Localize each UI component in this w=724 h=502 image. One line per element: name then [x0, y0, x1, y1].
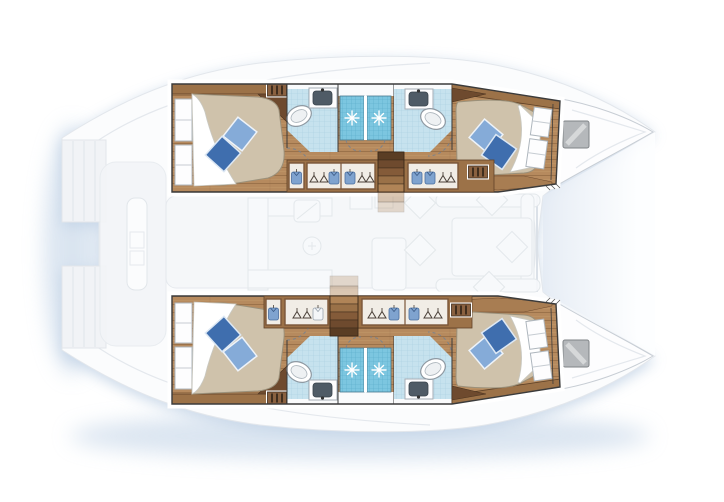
companionway-stairs — [330, 276, 358, 336]
transom-steps-bottom — [62, 266, 106, 348]
floor-plan-stage — [0, 0, 724, 502]
catamaran-floor-plan — [0, 0, 724, 502]
vent-grate-icon — [467, 165, 489, 180]
companionway-stairs — [378, 152, 404, 212]
galley-island — [372, 238, 406, 290]
galley-cabinet — [350, 196, 372, 209]
transom-steps-top — [62, 140, 106, 222]
cockpit — [100, 162, 166, 346]
vent-grate-icon — [450, 303, 472, 318]
